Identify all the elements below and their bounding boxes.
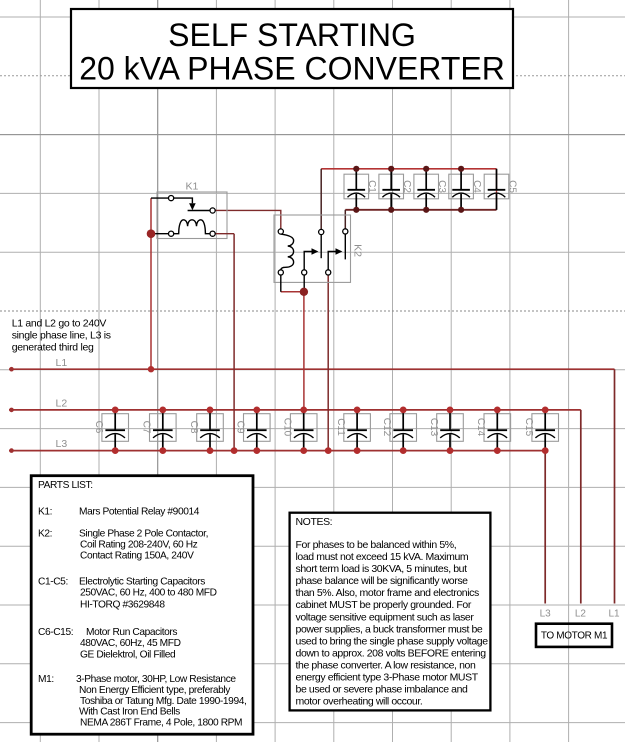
svg-text:SELF STARTING: SELF STARTING xyxy=(168,17,416,53)
svg-text:C5: C5 xyxy=(506,180,517,193)
svg-text:phase balance will be signific: phase balance will be significantly wors… xyxy=(296,575,469,587)
svg-text:load must not exceed 15 kVA.: load must not exceed 15 kVA. Maximum xyxy=(296,551,469,563)
svg-text:C14: C14 xyxy=(475,418,486,437)
svg-text:C9: C9 xyxy=(235,421,246,434)
svg-text:single phase line, L3 is: single phase line, L3 is xyxy=(12,330,111,342)
svg-text:C1: C1 xyxy=(366,180,377,193)
svg-text:the phase converter. A low re: the phase converter. A low resistance, n… xyxy=(296,660,476,672)
svg-text:L2: L2 xyxy=(575,609,587,620)
svg-text:Toshiba or Tatung Mfg. Date 19: Toshiba or Tatung Mfg. Date 1990-1994, xyxy=(80,696,246,707)
svg-text:C1-C5:: C1-C5: xyxy=(38,576,68,587)
svg-text:motor overheating will occour.: motor overheating will occour. xyxy=(296,696,423,708)
svg-text:C4: C4 xyxy=(471,180,482,193)
svg-text:L1: L1 xyxy=(56,357,68,369)
svg-text:250VAC, 60 Hz, 400 to 480 MFD: 250VAC, 60 Hz, 400 to 480 MFD xyxy=(80,587,217,598)
svg-text:K1: K1 xyxy=(186,181,199,193)
svg-text:For phases to be balanced with: For phases to be balanced within 5%, xyxy=(296,539,457,551)
svg-text:cabinet MUST be properly groun: cabinet MUST be properly grounded. For xyxy=(296,599,472,611)
svg-text:TO MOTOR M1: TO MOTOR M1 xyxy=(541,630,608,641)
svg-text:than 5%. Also, motor frame an: than 5%. Also, motor frame and electroni… xyxy=(296,587,480,599)
svg-text:L2: L2 xyxy=(56,398,68,410)
svg-text:K1:: K1: xyxy=(38,506,52,517)
svg-text:Single Phase 2 Pole Contactor,: Single Phase 2 Pole Contactor, xyxy=(79,529,208,540)
svg-text:Contact Rating 150A, 240V: Contact Rating 150A, 240V xyxy=(80,551,194,562)
svg-text:be used or severe phase imbala: be used or severe phase imbalance and xyxy=(296,684,469,696)
svg-text:HI-TORQ #3629848: HI-TORQ #3629848 xyxy=(80,600,165,611)
svg-text:C11: C11 xyxy=(335,418,346,436)
svg-text:C6: C6 xyxy=(93,421,104,434)
svg-text:used to bring the single phase: used to bring the single phase supply vo… xyxy=(296,635,489,647)
svg-text:480VAC, 60Hz, 45 MFD: 480VAC, 60Hz, 45 MFD xyxy=(80,638,181,649)
svg-text:With Cast Iron End Bells: With Cast Iron End Bells xyxy=(79,707,180,718)
svg-text:Mars Potential Relay #90014: Mars Potential Relay #90014 xyxy=(79,506,200,517)
svg-text:Motor Run Capacitors: Motor Run Capacitors xyxy=(86,627,177,638)
svg-text:M1:: M1: xyxy=(38,674,54,685)
svg-text:3-Phase motor, 30HP, Low Resis: 3-Phase motor, 30HP, Low Resistance xyxy=(76,674,236,685)
svg-text:Coil Rating 208-240V, 60 Hz: Coil Rating 208-240V, 60 Hz xyxy=(80,540,198,551)
svg-text:L3: L3 xyxy=(56,438,68,450)
svg-text:20 kVA PHASE CONVERTER: 20 kVA PHASE CONVERTER xyxy=(79,51,505,87)
svg-text:C6-C15:: C6-C15: xyxy=(38,627,73,638)
svg-text:C2: C2 xyxy=(401,180,412,193)
svg-text:K2: K2 xyxy=(352,244,364,257)
svg-text:PARTS LIST:: PARTS LIST: xyxy=(38,480,93,491)
svg-text:power supplies, a buck transfo: power supplies, a buck transformer must … xyxy=(296,623,483,635)
svg-text:GE Dielektrol, Oil Filled: GE Dielektrol, Oil Filled xyxy=(80,649,176,660)
svg-text:Non Energy Efficient type, pre: Non Energy Efficient type, preferably xyxy=(79,685,231,696)
svg-text:C3: C3 xyxy=(436,180,447,193)
svg-text:energy efficient type 3-Phase: energy efficient type 3-Phase motor MUST xyxy=(296,672,479,684)
svg-text:C13: C13 xyxy=(428,418,439,437)
svg-text:L3: L3 xyxy=(540,609,552,620)
svg-text:L1 and L2 go to 240V: L1 and L2 go to 240V xyxy=(12,317,107,329)
svg-text:voltage sensitive equipment su: voltage sensitive equipment such as lase… xyxy=(296,611,475,623)
svg-text:C15: C15 xyxy=(523,418,534,437)
svg-text:NEMA 286T Frame, 4 Pole, 1800: NEMA 286T Frame, 4 Pole, 1800 RPM xyxy=(80,718,242,729)
svg-text:NOTES:: NOTES: xyxy=(296,516,333,528)
svg-text:C10: C10 xyxy=(281,418,292,437)
svg-text:L1: L1 xyxy=(608,609,620,620)
svg-text:short term load is 30KVA, 5 mi: short term load is 30KVA, 5 minutes, but xyxy=(296,563,468,575)
svg-text:generated third leg: generated third leg xyxy=(12,342,94,354)
svg-text:C7: C7 xyxy=(141,421,152,434)
svg-text:C12: C12 xyxy=(381,418,392,437)
svg-text:C8: C8 xyxy=(188,421,199,434)
svg-text:down to approx. 208 volts BEFO: down to approx. 208 volts BEFORE enterin… xyxy=(296,648,487,660)
svg-text:Electrolytic Starting Capacito: Electrolytic Starting Capacitors xyxy=(79,576,205,587)
svg-text:K2:: K2: xyxy=(38,529,52,540)
